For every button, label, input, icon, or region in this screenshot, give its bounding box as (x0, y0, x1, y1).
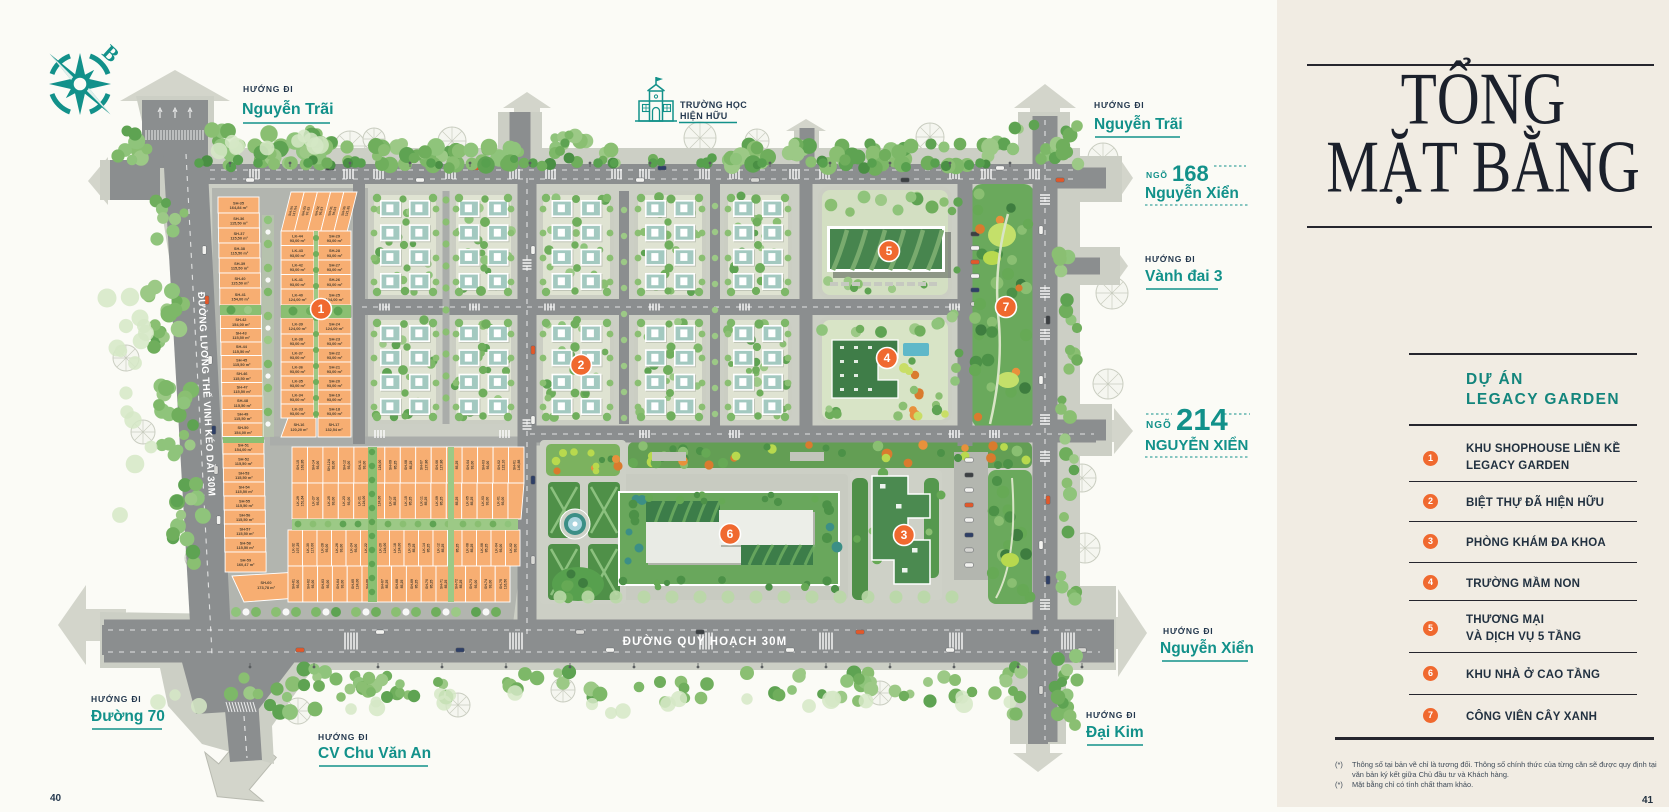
svg-text:SH-17: SH-17 (329, 423, 340, 427)
svg-text:120,20 m²: 120,20 m² (290, 428, 308, 432)
svg-text:154,00 m²: 154,00 m² (235, 447, 253, 452)
svg-text:SH-73: SH-73 (469, 579, 473, 589)
svg-text:124,00 m²: 124,00 m² (289, 297, 307, 302)
svg-text:214: 214 (1176, 402, 1228, 437)
svg-text:LK-02: LK-02 (509, 543, 513, 553)
svg-text:ĐƯỜNG QUY HOẠCH 30M: ĐƯỜNG QUY HOẠCH 30M (623, 635, 788, 648)
svg-text:SH-16: SH-16 (294, 423, 305, 427)
svg-text:85,25: 85,25 (485, 544, 489, 553)
svg-text:93,00 m²: 93,00 m² (327, 411, 343, 416)
svg-text:115,50 m²: 115,50 m² (234, 416, 252, 421)
svg-text:85,25: 85,25 (393, 461, 397, 470)
svg-text:93,00: 93,00 (326, 580, 330, 589)
svg-text:85,25: 85,25 (393, 497, 397, 506)
svg-text:124,00: 124,00 (383, 543, 387, 554)
svg-text:SH-03: SH-03 (482, 460, 486, 470)
svg-text:93,00 m²: 93,00 m² (327, 282, 343, 287)
svg-text:40: 40 (50, 793, 62, 804)
svg-text:93,00 m²: 93,00 m² (290, 411, 306, 416)
svg-text:SH-65: SH-65 (351, 579, 355, 589)
svg-text:LK-08: LK-08 (465, 543, 469, 553)
svg-text:SH-68: SH-68 (395, 579, 399, 589)
svg-text:SH-08: SH-08 (404, 460, 408, 470)
svg-text:93,00: 93,00 (354, 544, 358, 553)
svg-text:116,50: 116,50 (503, 579, 507, 590)
svg-text:SH-14: SH-14 (311, 460, 315, 470)
svg-text:LK-29: LK-29 (296, 496, 300, 506)
svg-text:SH-64: SH-64 (336, 579, 340, 589)
svg-text:85,25: 85,25 (455, 461, 459, 470)
svg-text:LK-16: LK-16 (407, 543, 411, 553)
svg-text:168: 168 (1172, 161, 1209, 186)
svg-text:124,00: 124,00 (378, 496, 382, 507)
svg-text:93,00: 93,00 (340, 544, 344, 553)
svg-text:3: 3 (901, 528, 908, 542)
svg-text:93,00 m²: 93,00 m² (327, 253, 343, 258)
svg-text:115,50 m²: 115,50 m² (230, 221, 248, 226)
svg-text:173,78 m²: 173,78 m² (257, 585, 275, 590)
svg-text:SH-04: SH-04 (466, 460, 470, 470)
svg-text:115,50 m²: 115,50 m² (235, 475, 253, 480)
svg-text:HƯỚNG ĐI: HƯỚNG ĐI (318, 731, 368, 742)
svg-text:164,84 m²: 164,84 m² (230, 205, 248, 210)
svg-text:SH-70: SH-70 (425, 579, 429, 589)
svg-text:SH-69: SH-69 (410, 579, 414, 589)
svg-text:SH-61: SH-61 (292, 579, 296, 589)
svg-text:LK-01: LK-01 (497, 496, 501, 506)
svg-text:140,88: 140,88 (517, 460, 521, 471)
svg-text:85,25: 85,25 (424, 497, 428, 506)
svg-text:LK-27: LK-27 (311, 496, 315, 506)
svg-text:LK-12: LK-12 (436, 543, 440, 553)
svg-text:LK-18: LK-18 (393, 543, 397, 553)
svg-text:SH-15: SH-15 (296, 460, 300, 470)
svg-text:HƯỚNG ĐI: HƯỚNG ĐI (1086, 709, 1136, 720)
svg-text:107,25: 107,25 (296, 543, 300, 554)
svg-text:SH-02: SH-02 (497, 460, 501, 470)
svg-text:93,00 m²: 93,00 m² (327, 383, 343, 388)
svg-text:85,25: 85,25 (459, 580, 463, 589)
svg-text:93,00: 93,00 (331, 497, 335, 506)
svg-text:85,25: 85,25 (409, 461, 413, 470)
svg-text:92,00: 92,00 (332, 461, 336, 470)
svg-text:163,95: 163,95 (301, 460, 305, 471)
svg-text:Nguyễn Trãi: Nguyễn Trãi (1094, 116, 1183, 133)
svg-text:93,00 m²: 93,00 m² (290, 397, 306, 402)
svg-text:93,00: 93,00 (499, 544, 503, 553)
svg-text:124,00 m²: 124,00 m² (289, 326, 307, 331)
svg-text:85,25: 85,25 (441, 544, 445, 553)
svg-text:124,00: 124,00 (398, 543, 402, 554)
svg-text:LK-03: LK-03 (481, 496, 485, 506)
svg-text:117,00: 117,00 (311, 543, 315, 554)
svg-text:132,54 m²: 132,54 m² (325, 428, 343, 432)
svg-text:93,00 m²: 93,00 m² (290, 341, 306, 346)
svg-text:122,10: 122,10 (502, 460, 506, 471)
svg-text:127,86: 127,86 (440, 460, 444, 471)
svg-text:93,00 m²: 93,00 m² (290, 369, 306, 374)
svg-text:93,00: 93,00 (489, 580, 493, 589)
svg-text:115,50 m²: 115,50 m² (233, 389, 251, 394)
svg-text:115,50 m²: 115,50 m² (236, 531, 254, 536)
svg-text:LK-28: LK-28 (320, 543, 324, 553)
svg-text:160,47 m²: 160,47 m² (237, 562, 255, 567)
svg-text:93,00: 93,00 (296, 580, 300, 589)
svg-text:85,25: 85,25 (444, 580, 448, 589)
svg-text:115,50 m²: 115,50 m² (230, 236, 248, 241)
svg-text:93,00: 93,00 (347, 497, 351, 506)
svg-text:93,00: 93,00 (341, 580, 345, 589)
svg-text:115,50 m²: 115,50 m² (231, 266, 249, 271)
svg-text:85,25: 85,25 (455, 497, 459, 506)
svg-text:LK-25: LK-25 (327, 496, 331, 506)
svg-text:SH-07: SH-07 (420, 460, 424, 470)
svg-text:115,50 m²: 115,50 m² (233, 349, 251, 354)
svg-text:SH-74: SH-74 (484, 579, 488, 589)
svg-text:SH-01: SH-01 (513, 460, 517, 470)
svg-text:LK-24: LK-24 (349, 543, 353, 553)
svg-text:NGUYỄN XIỂN: NGUYỄN XIỂN (1145, 436, 1248, 454)
svg-text:LK-21: LK-21 (358, 496, 362, 506)
svg-text:4: 4 (884, 351, 891, 365)
svg-text:SH-09: SH-09 (389, 460, 393, 470)
svg-text:93,00 m²: 93,00 m² (327, 355, 343, 360)
svg-text:LK-15: LK-15 (404, 496, 408, 506)
svg-text:93,00: 93,00 (362, 461, 366, 470)
svg-text:2: 2 (578, 358, 585, 372)
svg-text:115,50 m²: 115,50 m² (234, 403, 252, 408)
svg-text:93,00: 93,00 (311, 580, 315, 589)
svg-text:LK-30: LK-30 (306, 543, 310, 553)
svg-text:SH-72: SH-72 (454, 579, 458, 589)
svg-text:Vành đai 3: Vành đai 3 (1145, 268, 1223, 285)
svg-text:93,00 m²: 93,00 m² (327, 397, 343, 402)
svg-text:SH-62: SH-62 (306, 579, 310, 589)
svg-text:LK-32: LK-32 (291, 543, 295, 553)
svg-text:SH-06: SH-06 (435, 460, 439, 470)
svg-text:154,00 m²: 154,00 m² (232, 322, 250, 327)
svg-text:LK-11: LK-11 (419, 496, 423, 506)
svg-text:85,25: 85,25 (470, 544, 474, 553)
svg-text:85,25: 85,25 (385, 580, 389, 589)
svg-text:93,00: 93,00 (486, 461, 490, 470)
svg-text:85,25: 85,25 (409, 497, 413, 506)
svg-text:93,00: 93,00 (347, 461, 351, 470)
svg-text:93,00 m²: 93,00 m² (290, 282, 306, 287)
svg-text:127,86: 127,86 (424, 460, 428, 471)
svg-text:HƯỚNG ĐI: HƯỚNG ĐI (1094, 99, 1144, 110)
svg-text:93,00 m²: 93,00 m² (327, 369, 343, 374)
svg-text:HIỆN HỮU: HIỆN HỮU (680, 110, 728, 121)
svg-text:85,25: 85,25 (456, 544, 460, 553)
svg-text:1: 1 (318, 302, 325, 316)
svg-text:115,50 m²: 115,50 m² (233, 362, 251, 367)
svg-text:LK-14: LK-14 (422, 543, 426, 553)
svg-text:93,00: 93,00 (471, 461, 475, 470)
svg-text:LK-26: LK-26 (335, 543, 339, 553)
svg-text:SH-67: SH-67 (380, 579, 384, 589)
svg-text:LK-20: LK-20 (378, 543, 382, 553)
svg-text:SH-12: SH-12 (342, 460, 346, 470)
svg-text:115,50 m²: 115,50 m² (235, 489, 253, 494)
svg-text:154,00 m²: 154,00 m² (234, 430, 252, 435)
svg-text:SH-11: SH-11 (358, 460, 362, 470)
svg-text:93,00 m²: 93,00 m² (327, 238, 343, 243)
svg-text:SH-63: SH-63 (321, 579, 325, 589)
svg-text:85,25: 85,25 (400, 580, 404, 589)
svg-text:151,64: 151,64 (301, 496, 305, 507)
svg-text:NGÕ: NGÕ (1146, 170, 1168, 180)
svg-text:85,25: 85,25 (415, 580, 419, 589)
svg-text:85,25: 85,25 (439, 497, 443, 506)
svg-text:93,00 m²: 93,00 m² (290, 238, 306, 243)
svg-text:Nguyễn Xiển: Nguyễn Xiển (1145, 185, 1239, 202)
svg-text:115,50 m²: 115,50 m² (236, 503, 254, 508)
svg-text:93,00: 93,00 (501, 497, 505, 506)
svg-text:115,50 m²: 115,50 m² (236, 517, 254, 522)
svg-text:Nguyễn Trãi: Nguyễn Trãi (242, 99, 334, 118)
svg-text:LK-17: LK-17 (389, 496, 393, 506)
svg-text:93,00: 93,00 (316, 497, 320, 506)
svg-text:93,00: 93,00 (486, 497, 490, 506)
svg-text:LK-09: LK-09 (435, 496, 439, 506)
svg-text:5: 5 (886, 244, 893, 258)
svg-text:93,00: 93,00 (474, 580, 478, 589)
svg-text:SH-71: SH-71 (440, 579, 444, 589)
svg-text:SH-75: SH-75 (499, 579, 503, 589)
svg-text:93,00: 93,00 (316, 461, 320, 470)
svg-text:LK-04: LK-04 (494, 543, 498, 553)
svg-text:115,50 m²: 115,50 m² (235, 461, 253, 466)
svg-text:124,00: 124,00 (355, 579, 359, 590)
svg-text:124,00 m²: 124,00 m² (326, 326, 344, 331)
svg-text:93,00: 93,00 (514, 544, 518, 553)
svg-text:Nguyễn Xiển: Nguyễn Xiển (1160, 640, 1254, 657)
svg-text:115,50 m²: 115,50 m² (231, 251, 249, 256)
svg-text:LK-22: LK-22 (364, 543, 368, 553)
svg-text:Đường 70: Đường 70 (91, 708, 165, 725)
svg-text:Đại Kim: Đại Kim (1086, 724, 1144, 741)
svg-text:HƯỚNG ĐI: HƯỚNG ĐI (1145, 253, 1195, 264)
svg-text:115,50 m²: 115,50 m² (231, 281, 249, 286)
svg-text:6: 6 (727, 527, 734, 541)
svg-text:115,50 m²: 115,50 m² (237, 545, 255, 550)
svg-text:93,00: 93,00 (325, 544, 329, 553)
svg-text:93,00 m²: 93,00 m² (327, 341, 343, 346)
svg-text:124,00: 124,00 (378, 460, 382, 471)
svg-text:7: 7 (1003, 300, 1010, 314)
svg-text:93,00 m²: 93,00 m² (290, 267, 306, 272)
svg-text:115,50 m²: 115,50 m² (232, 335, 250, 340)
svg-text:93,00 m²: 93,00 m² (327, 267, 343, 272)
svg-text:TRƯỜNG HỌC: TRƯỜNG HỌC (680, 99, 747, 110)
svg-text:HƯỚNG ĐI: HƯỚNG ĐI (91, 693, 141, 704)
svg-text:154,00 m²: 154,00 m² (231, 297, 249, 302)
svg-text:SH-12A: SH-12A (327, 458, 331, 471)
svg-text:93,00 m²: 93,00 m² (290, 253, 306, 258)
svg-text:85,25: 85,25 (470, 497, 474, 506)
svg-text:115,50 m²: 115,50 m² (233, 376, 251, 381)
svg-text:93,00 m²: 93,00 m² (290, 355, 306, 360)
svg-text:93,00 m²: 93,00 m² (290, 383, 306, 388)
svg-text:85,25: 85,25 (412, 544, 416, 553)
svg-text:85,25: 85,25 (429, 580, 433, 589)
svg-text:NGÕ: NGÕ (1146, 418, 1172, 431)
svg-text:HƯỚNG ĐI: HƯỚNG ĐI (1163, 625, 1213, 636)
svg-text:CV Chu Văn An: CV Chu Văn An (318, 745, 431, 762)
svg-text:HƯỚNG ĐI: HƯỚNG ĐI (243, 83, 293, 94)
svg-text:LK-23: LK-23 (342, 496, 346, 506)
svg-text:124,00: 124,00 (362, 496, 366, 507)
svg-text:85,25: 85,25 (427, 544, 431, 553)
svg-text:LK-06: LK-06 (480, 543, 484, 553)
svg-text:LK-05: LK-05 (466, 496, 470, 506)
